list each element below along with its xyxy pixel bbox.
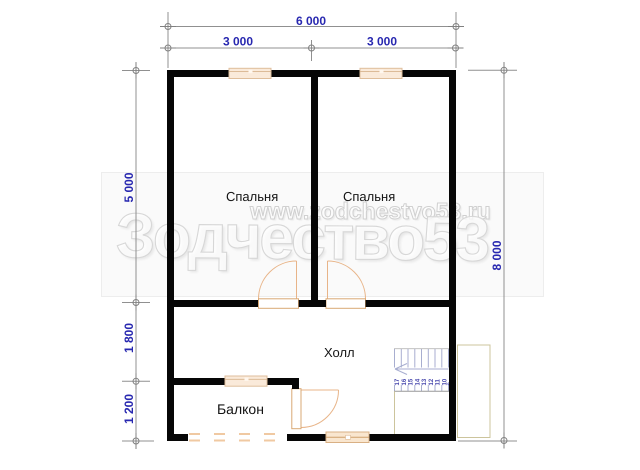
svg-text:15: 15 xyxy=(409,378,415,385)
svg-text:12: 12 xyxy=(429,378,435,385)
svg-text:6 000: 6 000 xyxy=(296,14,326,28)
svg-text:16: 16 xyxy=(402,378,408,385)
svg-text:5 000: 5 000 xyxy=(122,172,136,202)
svg-text:11: 11 xyxy=(436,378,442,385)
svg-text:8 000: 8 000 xyxy=(490,240,504,270)
svg-text:17: 17 xyxy=(395,378,401,385)
svg-text:13: 13 xyxy=(422,378,428,385)
svg-text:3 000: 3 000 xyxy=(367,35,397,49)
svg-text:1 800: 1 800 xyxy=(122,323,136,353)
svg-text:1 200: 1 200 xyxy=(122,394,136,424)
svg-text:3 000: 3 000 xyxy=(223,35,253,49)
svg-text:14: 14 xyxy=(415,378,421,385)
